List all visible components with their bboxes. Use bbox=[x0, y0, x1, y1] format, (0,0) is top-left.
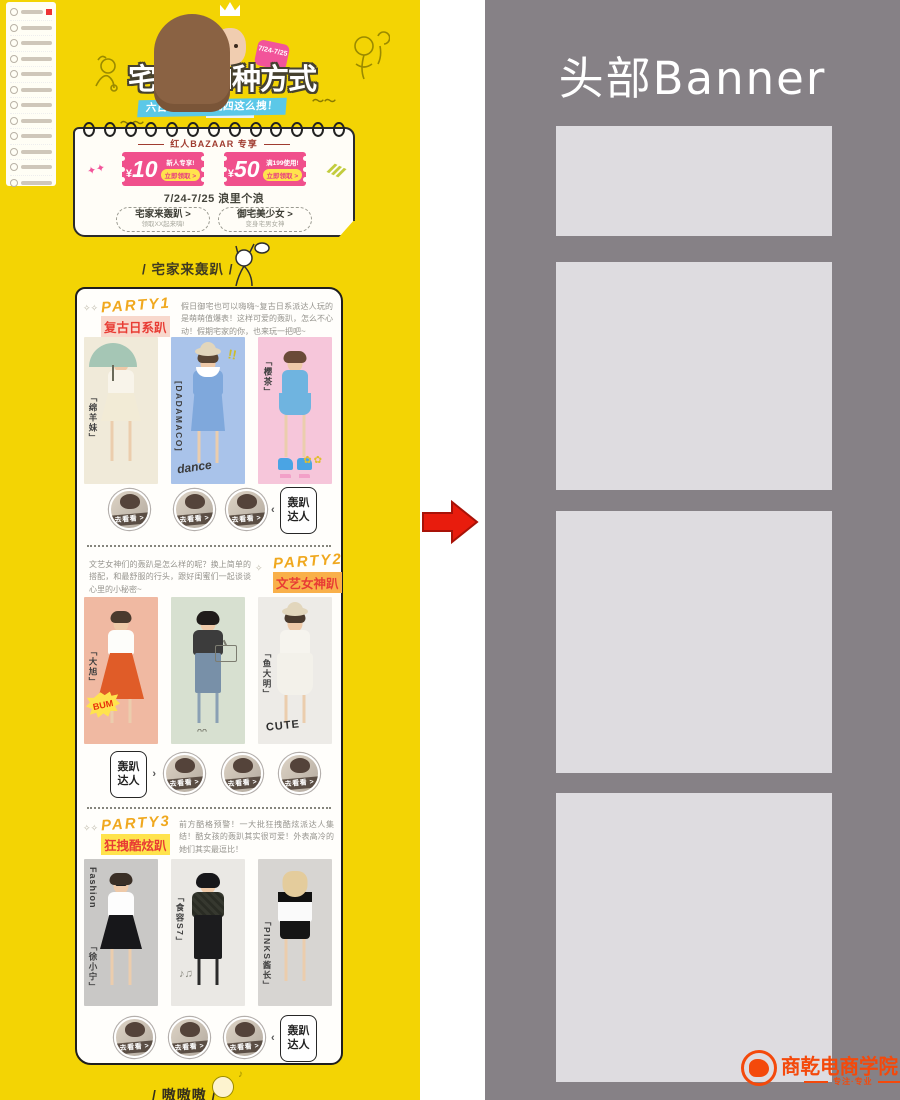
category-icon bbox=[10, 8, 18, 16]
section-title: / 宅家来轰趴 / bbox=[142, 258, 234, 278]
blogger-avatar[interactable]: 去看看 > bbox=[114, 1017, 155, 1058]
party-tag: PARTY3 bbox=[100, 813, 171, 835]
nav-button-girl[interactable]: 御宅美少女 > 变身宅男女神 bbox=[218, 207, 312, 232]
academy-logo-icon bbox=[741, 1050, 777, 1086]
wireframe-box-1 bbox=[556, 126, 832, 236]
party-tag: PARTY2 bbox=[272, 551, 343, 573]
party3-header: PARTY3 狂拽酷炫趴 bbox=[101, 815, 171, 855]
coupon-10[interactable]: ¥10 新人专享! 立即领取 > bbox=[122, 152, 204, 186]
sidebar-item[interactable] bbox=[10, 67, 52, 83]
model-card[interactable]: Fashion 「徐小宁」 bbox=[84, 859, 158, 1006]
model-label: 「大旭」 bbox=[87, 647, 99, 687]
blogger-avatar[interactable]: 去看看 > bbox=[174, 489, 215, 530]
sidebar-item[interactable] bbox=[10, 21, 52, 37]
umbrella-icon bbox=[89, 343, 137, 367]
nav-button-party[interactable]: 宅家来轰趴 > 领取XX起来嗨! bbox=[116, 207, 210, 232]
blogger-avatar[interactable]: 去看看 > bbox=[109, 489, 150, 530]
doodle-icon bbox=[350, 28, 390, 90]
sidebar-item[interactable] bbox=[10, 129, 52, 145]
sidebar-item[interactable] bbox=[10, 36, 52, 52]
wireframe-label-header-banner: 头部Banner bbox=[485, 42, 900, 107]
coupon-50[interactable]: ¥50 满199使用! 立即领取 > bbox=[224, 152, 306, 186]
party-name: 文艺女神趴 bbox=[273, 572, 342, 593]
category-icon bbox=[10, 163, 18, 171]
party1-header: PARTY1 复古日系趴 bbox=[101, 297, 171, 337]
music-notes-doodle: ♪♫ bbox=[179, 968, 193, 980]
sidebar-item[interactable] bbox=[10, 176, 52, 191]
category-icon bbox=[10, 101, 18, 109]
wireframe-panel: 头部Banner 商乾电商学院 专注·专业 bbox=[485, 0, 900, 1100]
academy-watermark: 商乾电商学院 专注·专业 bbox=[741, 1048, 899, 1098]
model-card[interactable]: 「鱼大明」 CUTE bbox=[258, 597, 332, 744]
doodle-icon bbox=[88, 52, 122, 96]
sparkle-icon: ✧ bbox=[255, 563, 263, 574]
model-card[interactable]: ᴖᴖ 「蛋挞」 bbox=[171, 597, 245, 744]
hot-badge bbox=[46, 9, 52, 15]
model-label: 「樱茶」 bbox=[262, 357, 274, 397]
sidebar-item[interactable] bbox=[10, 83, 52, 99]
party3-models: Fashion 「徐小宁」 ♪♫ 「食容S7」 「PINKS酱长」 bbox=[84, 859, 332, 1006]
model-card[interactable]: 「大旭」 BUM bbox=[84, 597, 158, 744]
party2-header: PARTY2 文艺女神趴 bbox=[273, 553, 343, 593]
tv-doodle bbox=[215, 645, 237, 662]
cheering-doodle-icon bbox=[224, 240, 270, 293]
category-icon bbox=[10, 179, 18, 187]
category-icon bbox=[10, 70, 18, 78]
party-desc: 前方酷格预警！一大批狂拽酷炫派达人集结！酷女孩的轰趴其实很可爱！外表高冷的她们其… bbox=[179, 819, 334, 856]
category-icon bbox=[10, 55, 18, 63]
blogger-avatar[interactable]: 去看看 > bbox=[224, 1017, 265, 1058]
blogger-avatar[interactable]: 去看看 > bbox=[279, 753, 320, 794]
party-tag: PARTY1 bbox=[100, 295, 171, 317]
design-comparison-canvas: 〜〜 〜〜 7/24-7/25 宅家のN种方式 六日狂欢宅，就四这么拽！ 红人B… bbox=[0, 0, 900, 1100]
claim-button[interactable]: 立即领取 > bbox=[263, 169, 303, 181]
party2-models: 「大旭」 BUM ᴖᴖ 「蛋挞」 「鱼大明」 CUTE bbox=[84, 597, 332, 744]
exclaim-doodle: !! bbox=[227, 346, 238, 362]
dashed-divider bbox=[87, 545, 331, 547]
promo-date-line: 7/24-7/25 浪里个浪 bbox=[75, 190, 353, 206]
sparkle-icon: ✧✧ bbox=[83, 303, 98, 314]
category-icon bbox=[10, 39, 18, 47]
sidebar-item[interactable] bbox=[10, 114, 52, 130]
party-desc: 假日御宅也可以嗨嗨~复古日系派达人玩的是萌萌值爆表！这样可爱的轰趴，怎么不心动！… bbox=[181, 301, 333, 338]
sidebar-item[interactable] bbox=[10, 98, 52, 114]
sidebar-item[interactable] bbox=[10, 160, 52, 176]
academy-tagline: 专注·专业 bbox=[799, 1076, 900, 1087]
model-extra: CUTE bbox=[265, 718, 300, 733]
next-section-title: / 嗷嗷嗷 / bbox=[152, 1085, 217, 1100]
hat-icon bbox=[195, 347, 221, 356]
category-icon bbox=[10, 148, 18, 156]
party-expert-button[interactable]: 轰趴达人 bbox=[280, 1015, 317, 1062]
wireframe-box-2 bbox=[556, 262, 832, 490]
model-extra: dance bbox=[176, 458, 212, 477]
blogger-avatar[interactable]: 去看看 > bbox=[164, 753, 205, 794]
sidebar-item[interactable] bbox=[10, 52, 52, 68]
blogger-avatar[interactable]: 去看看 > bbox=[226, 489, 267, 530]
crown-icon bbox=[220, 2, 240, 16]
glasses-doodle: ᴖᴖ bbox=[197, 726, 207, 736]
model-label: [DADAMACO] bbox=[174, 381, 184, 452]
party-desc: 文艺女神们的轰趴是怎么样的呢？换上简单的搭配，和最舒服的行头，跟好闺蜜们一起谈谈… bbox=[89, 559, 251, 596]
model-extra: Fashion bbox=[88, 867, 98, 909]
party-card: ✧✧ PARTY1 复古日系趴 假日御宅也可以嗨嗨~复古日系派达人玩的是萌萌值爆… bbox=[75, 287, 343, 1065]
model-card[interactable]: 「PINKS酱长」 bbox=[258, 859, 332, 1006]
party-name: 狂拽酷炫趴 bbox=[101, 834, 170, 855]
model-label: 「绵羊妹」 bbox=[87, 393, 99, 443]
hat-icon bbox=[282, 607, 308, 616]
category-icon bbox=[10, 132, 18, 140]
category-sidebar bbox=[6, 2, 56, 186]
model-label: 「徐小宁」 bbox=[87, 942, 99, 992]
party-expert-button[interactable]: 轰趴达人 bbox=[280, 487, 317, 534]
coupon-panel-title: 红人BAZAAR 专享 bbox=[75, 137, 353, 150]
wireframe-box-4 bbox=[556, 793, 832, 1082]
coupon-condition: 新人专享! bbox=[166, 157, 194, 167]
flower-doodle: ✿✿ bbox=[303, 455, 324, 466]
wireframe-box-3 bbox=[556, 511, 832, 773]
sidebar-item[interactable] bbox=[10, 145, 52, 161]
party-expert-button[interactable]: 轰趴达人 bbox=[110, 751, 147, 798]
sidebar-item[interactable] bbox=[10, 5, 52, 21]
model-label: 「PINKS酱长」 bbox=[261, 917, 273, 990]
model-label: 「鱼大明」 bbox=[261, 649, 273, 699]
category-icon bbox=[10, 86, 18, 94]
spiral-binding bbox=[83, 122, 345, 137]
red-arrow-icon bbox=[421, 499, 479, 550]
sparkle-icon: ✧✧ bbox=[83, 823, 98, 834]
model-label: 「食容S7」 bbox=[174, 893, 186, 946]
category-icon bbox=[10, 24, 18, 32]
blogger-avatar[interactable]: 去看看 > bbox=[222, 753, 263, 794]
coupon-panel: 红人BAZAAR 专享 ✦✦ ¥10 新人专享! 立即领取 > ¥50 满199… bbox=[73, 127, 355, 237]
claim-button[interactable]: 立即领取 > bbox=[161, 169, 201, 181]
model-card[interactable]: 「绵羊妹」 bbox=[84, 337, 158, 484]
promo-page: 〜〜 〜〜 7/24-7/25 宅家のN种方式 六日狂欢宅，就四这么拽！ 红人B… bbox=[0, 0, 420, 1100]
model-card[interactable]: ♪♫ 「食容S7」 bbox=[171, 859, 245, 1006]
model-card[interactable]: !! [DADAMACO] dance bbox=[171, 337, 245, 484]
dashed-divider bbox=[87, 807, 331, 809]
party-name: 复古日系趴 bbox=[101, 316, 170, 337]
doodle-icon bbox=[212, 1076, 234, 1098]
blogger-avatar[interactable]: 去看看 > bbox=[169, 1017, 210, 1058]
party1-models: 「绵羊妹」 !! [DADAMACO] dance ✿✿ 「樱茶」 bbox=[84, 337, 332, 484]
category-icon bbox=[10, 117, 18, 125]
model-card[interactable]: ✿✿ 「樱茶」 bbox=[258, 337, 332, 484]
coupon-condition: 满199使用! bbox=[266, 157, 299, 167]
